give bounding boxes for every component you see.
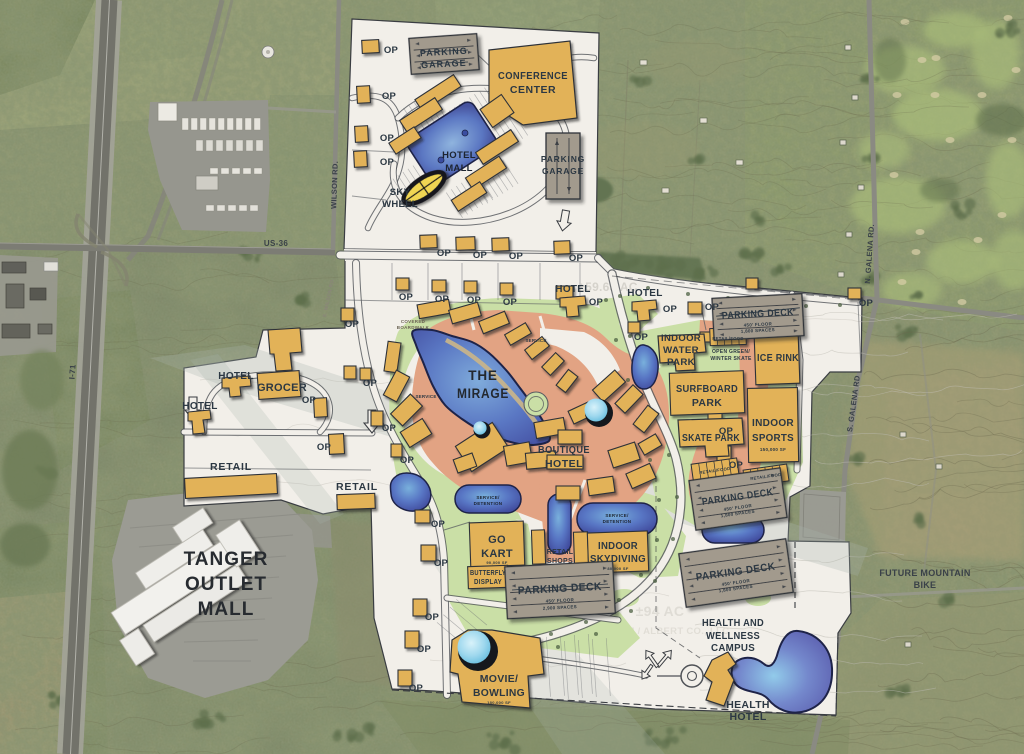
svg-text:OP: OP [663, 304, 678, 315]
svg-text:RETAIL: RETAIL [547, 549, 574, 556]
svg-text:OP: OP [859, 298, 874, 309]
svg-text:OP: OP [729, 460, 744, 471]
svg-text:PARK: PARK [692, 397, 722, 409]
svg-text:SURFBOARD: SURFBOARD [676, 383, 738, 395]
svg-text:OPEN GREEN/: OPEN GREEN/ [712, 349, 750, 355]
svg-text:OP: OP [380, 157, 395, 168]
svg-text:WATER: WATER [663, 345, 699, 356]
svg-text:PARKING: PARKING [541, 154, 585, 164]
svg-text:HOTEL: HOTEL [182, 401, 217, 412]
svg-text:OP: OP [509, 251, 524, 262]
svg-text:HOTEL: HOTEL [218, 371, 253, 382]
svg-text:BOUTIQUE: BOUTIQUE [538, 444, 590, 456]
svg-text:HOTEL: HOTEL [442, 150, 476, 161]
svg-text:WILSON RD.: WILSON RD. [329, 161, 340, 209]
svg-text:OP: OP [384, 45, 399, 56]
svg-text:CONFERENCE: CONFERENCE [498, 70, 568, 82]
svg-text:BOARDWALK: BOARDWALK [397, 325, 430, 330]
svg-text:OP: OP [409, 683, 424, 694]
svg-text:GARAGE: GARAGE [542, 166, 584, 176]
svg-text:OP: OP [705, 302, 720, 313]
svg-text:DISPLAY: DISPLAY [474, 579, 502, 586]
svg-text:90,000 SF: 90,000 SF [486, 560, 507, 565]
svg-text:HOTEL: HOTEL [545, 458, 583, 470]
svg-text:HOTEL: HOTEL [729, 711, 766, 723]
svg-text:SERVICE/: SERVICE/ [476, 495, 500, 500]
svg-text:±94 AC: ±94 AC [636, 603, 685, 619]
svg-text:BOWLING: BOWLING [473, 687, 525, 699]
svg-text:INDOOR: INDOOR [661, 333, 701, 344]
svg-text:HOTEL: HOTEL [555, 284, 590, 295]
svg-text:OP: OP [435, 294, 450, 305]
svg-text:FUTURE MOUNTAIN: FUTURE MOUNTAIN [879, 568, 970, 578]
svg-text:OP: OP [400, 455, 415, 466]
svg-text:WELLNESS: WELLNESS [706, 631, 760, 642]
svg-text:US-36: US-36 [264, 239, 288, 248]
svg-text:OP: OP [434, 558, 449, 569]
svg-text:CAMPUS: CAMPUS [711, 643, 755, 654]
svg-text:180,000 SF: 180,000 SF [487, 700, 511, 705]
svg-text:SERVICE: SERVICE [415, 394, 436, 399]
svg-text:SPORTS: SPORTS [752, 432, 794, 444]
svg-text:WINTER SKATE: WINTER SKATE [710, 356, 752, 362]
svg-text:OP: OP [569, 253, 584, 264]
svg-text:MOVIE/: MOVIE/ [480, 673, 519, 685]
svg-text:OP: OP [382, 423, 397, 434]
svg-text:OP: OP [437, 248, 452, 259]
svg-text:150,000 SF: 150,000 SF [760, 447, 786, 452]
svg-text:KART: KART [481, 548, 513, 560]
svg-text:TANGER: TANGER [184, 549, 269, 570]
svg-text:OP: OP [363, 378, 378, 389]
svg-text:RETAIL: RETAIL [336, 481, 378, 493]
svg-text:SKYDIVING: SKYDIVING [590, 554, 646, 565]
svg-text:SERVICE: SERVICE [525, 338, 546, 343]
svg-text:DETENTION: DETENTION [603, 519, 632, 524]
svg-text:MIRAGE: MIRAGE [457, 386, 509, 401]
svg-text:HEALTH: HEALTH [726, 699, 770, 711]
svg-text:MALL: MALL [445, 163, 473, 174]
svg-text:PARK: PARK [667, 357, 695, 368]
svg-text:OP: OP [382, 91, 397, 102]
svg-text:SKATE PARK: SKATE PARK [682, 432, 740, 444]
svg-text:GO: GO [488, 534, 506, 546]
svg-text:RETAIL/FOOD: RETAIL/FOOD [712, 336, 743, 341]
svg-text:ICE RINK: ICE RINK [757, 353, 799, 364]
svg-text:OP: OP [473, 250, 488, 261]
svg-text:HEALTH AND: HEALTH AND [702, 618, 764, 629]
svg-text:BIKE: BIKE [914, 580, 937, 590]
svg-text:CENTER: CENTER [510, 84, 556, 96]
svg-text:INDOOR: INDOOR [598, 541, 638, 552]
svg-text:COVERED: COVERED [401, 319, 426, 324]
svg-text:SKY: SKY [390, 187, 411, 198]
svg-text:OP: OP [317, 442, 332, 453]
svg-text:80,000 SF: 80,000 SF [607, 566, 628, 571]
svg-text:OP: OP [302, 395, 317, 406]
svg-text:GROCER: GROCER [257, 382, 307, 394]
svg-text:RETAIL: RETAIL [210, 461, 252, 473]
svg-text:OP: OP [425, 612, 440, 623]
svg-text:MALL: MALL [198, 599, 255, 620]
svg-text:HOTEL: HOTEL [627, 288, 662, 299]
svg-text:THE: THE [468, 368, 497, 383]
svg-text:SHOPS: SHOPS [547, 558, 573, 565]
svg-text:DETENTION: DETENTION [474, 501, 503, 506]
svg-text:OP: OP [431, 519, 446, 530]
svg-text:INDOOR: INDOOR [752, 417, 794, 429]
svg-text:OP: OP [467, 295, 482, 306]
svg-text:OP: OP [399, 292, 414, 303]
svg-text:OP: OP [589, 297, 604, 308]
svg-text:OP: OP [345, 319, 360, 330]
svg-text:OUTLET: OUTLET [185, 574, 267, 595]
svg-text:OP: OP [380, 133, 395, 144]
svg-text:SERVICE/: SERVICE/ [605, 513, 629, 518]
svg-text:WHEEL: WHEEL [382, 199, 418, 210]
svg-text:OP: OP [634, 332, 649, 343]
svg-text:BUTTERFLY: BUTTERFLY [470, 570, 506, 577]
svg-text:OP: OP [417, 644, 432, 655]
svg-text:OP: OP [503, 297, 518, 308]
svg-text:I-71: I-71 [67, 364, 77, 380]
